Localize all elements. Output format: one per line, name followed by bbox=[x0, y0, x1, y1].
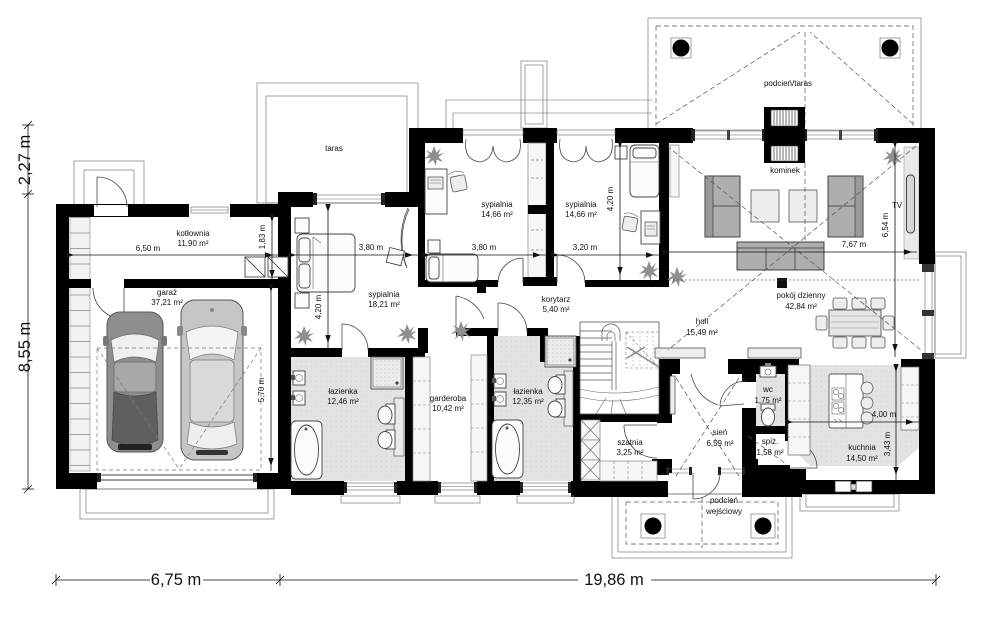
svg-text:15,49 m²: 15,49 m² bbox=[686, 328, 718, 337]
svg-text:5,40 m²: 5,40 m² bbox=[542, 305, 569, 314]
svg-text:łazienka: łazienka bbox=[328, 387, 358, 396]
svg-text:3,80 m: 3,80 m bbox=[359, 243, 384, 252]
svg-text:3,43 m: 3,43 m bbox=[883, 431, 892, 456]
svg-text:taras: taras bbox=[325, 144, 343, 153]
svg-text:sień: sień bbox=[713, 428, 728, 437]
svg-text:12,35 m²: 12,35 m² bbox=[512, 397, 544, 406]
svg-text:5,70 m: 5,70 m bbox=[257, 377, 266, 402]
svg-text:6,75 m: 6,75 m bbox=[151, 571, 201, 589]
svg-text:6,50 m: 6,50 m bbox=[136, 244, 161, 253]
svg-text:kuchnia: kuchnia bbox=[848, 443, 876, 452]
svg-text:spiż.: spiż. bbox=[762, 437, 778, 446]
svg-text:3,25 m²: 3,25 m² bbox=[616, 448, 643, 457]
svg-text:pokój dzienny: pokój dzienny bbox=[777, 291, 826, 300]
svg-text:wejściowy: wejściowy bbox=[705, 507, 742, 516]
svg-text:14,66 m²: 14,66 m² bbox=[481, 210, 513, 219]
svg-text:3,20 m: 3,20 m bbox=[573, 243, 598, 252]
svg-text:garderoba: garderoba bbox=[430, 394, 467, 403]
svg-text:korytarz: korytarz bbox=[542, 295, 570, 304]
svg-text:7,67 m: 7,67 m bbox=[842, 240, 867, 249]
svg-text:18,21 m²: 18,21 m² bbox=[368, 300, 400, 309]
svg-text:TV: TV bbox=[892, 201, 903, 210]
svg-text:6,54 m: 6,54 m bbox=[881, 212, 890, 237]
svg-text:4,20 m: 4,20 m bbox=[314, 294, 323, 319]
svg-text:1,75 m²: 1,75 m² bbox=[754, 396, 781, 405]
svg-text:3,80 m: 3,80 m bbox=[472, 243, 497, 252]
svg-text:14,66 m²: 14,66 m² bbox=[565, 210, 597, 219]
svg-text:42,84 m²: 42,84 m² bbox=[785, 302, 817, 311]
svg-text:wc: wc bbox=[762, 385, 773, 394]
svg-text:2,27 m: 2,27 m bbox=[16, 135, 34, 185]
svg-text:4,00 m: 4,00 m bbox=[872, 410, 897, 419]
svg-text:10,42 m²: 10,42 m² bbox=[432, 404, 464, 413]
svg-text:podcień/taras: podcień/taras bbox=[764, 79, 812, 88]
svg-text:8,55 m: 8,55 m bbox=[16, 322, 34, 372]
svg-text:14,50 m²: 14,50 m² bbox=[846, 454, 878, 463]
svg-text:4,20 m: 4,20 m bbox=[606, 186, 615, 211]
svg-text:6,59 m²: 6,59 m² bbox=[706, 439, 733, 448]
svg-text:podcień: podcień bbox=[710, 496, 738, 505]
svg-text:19,86 m: 19,86 m bbox=[584, 571, 644, 589]
svg-text:sypialnia: sypialnia bbox=[565, 200, 597, 209]
svg-text:szatnia: szatnia bbox=[617, 438, 643, 447]
svg-text:holl: holl bbox=[696, 317, 709, 326]
svg-text:garaż: garaż bbox=[157, 288, 177, 297]
svg-text:11,90 m²: 11,90 m² bbox=[178, 239, 209, 248]
svg-text:1,83 m: 1,83 m bbox=[258, 224, 267, 249]
svg-text:kominek: kominek bbox=[770, 166, 801, 175]
svg-text:sypialnia: sypialnia bbox=[481, 200, 513, 209]
svg-text:12,46 m²: 12,46 m² bbox=[327, 397, 359, 406]
svg-text:37,21 m²: 37,21 m² bbox=[151, 298, 183, 307]
svg-text:kotłownia: kotłownia bbox=[176, 229, 210, 238]
svg-text:sypialnia: sypialnia bbox=[368, 290, 400, 299]
svg-text:1,58 m²: 1,58 m² bbox=[756, 448, 783, 457]
svg-text:łazienka: łazienka bbox=[513, 387, 543, 396]
